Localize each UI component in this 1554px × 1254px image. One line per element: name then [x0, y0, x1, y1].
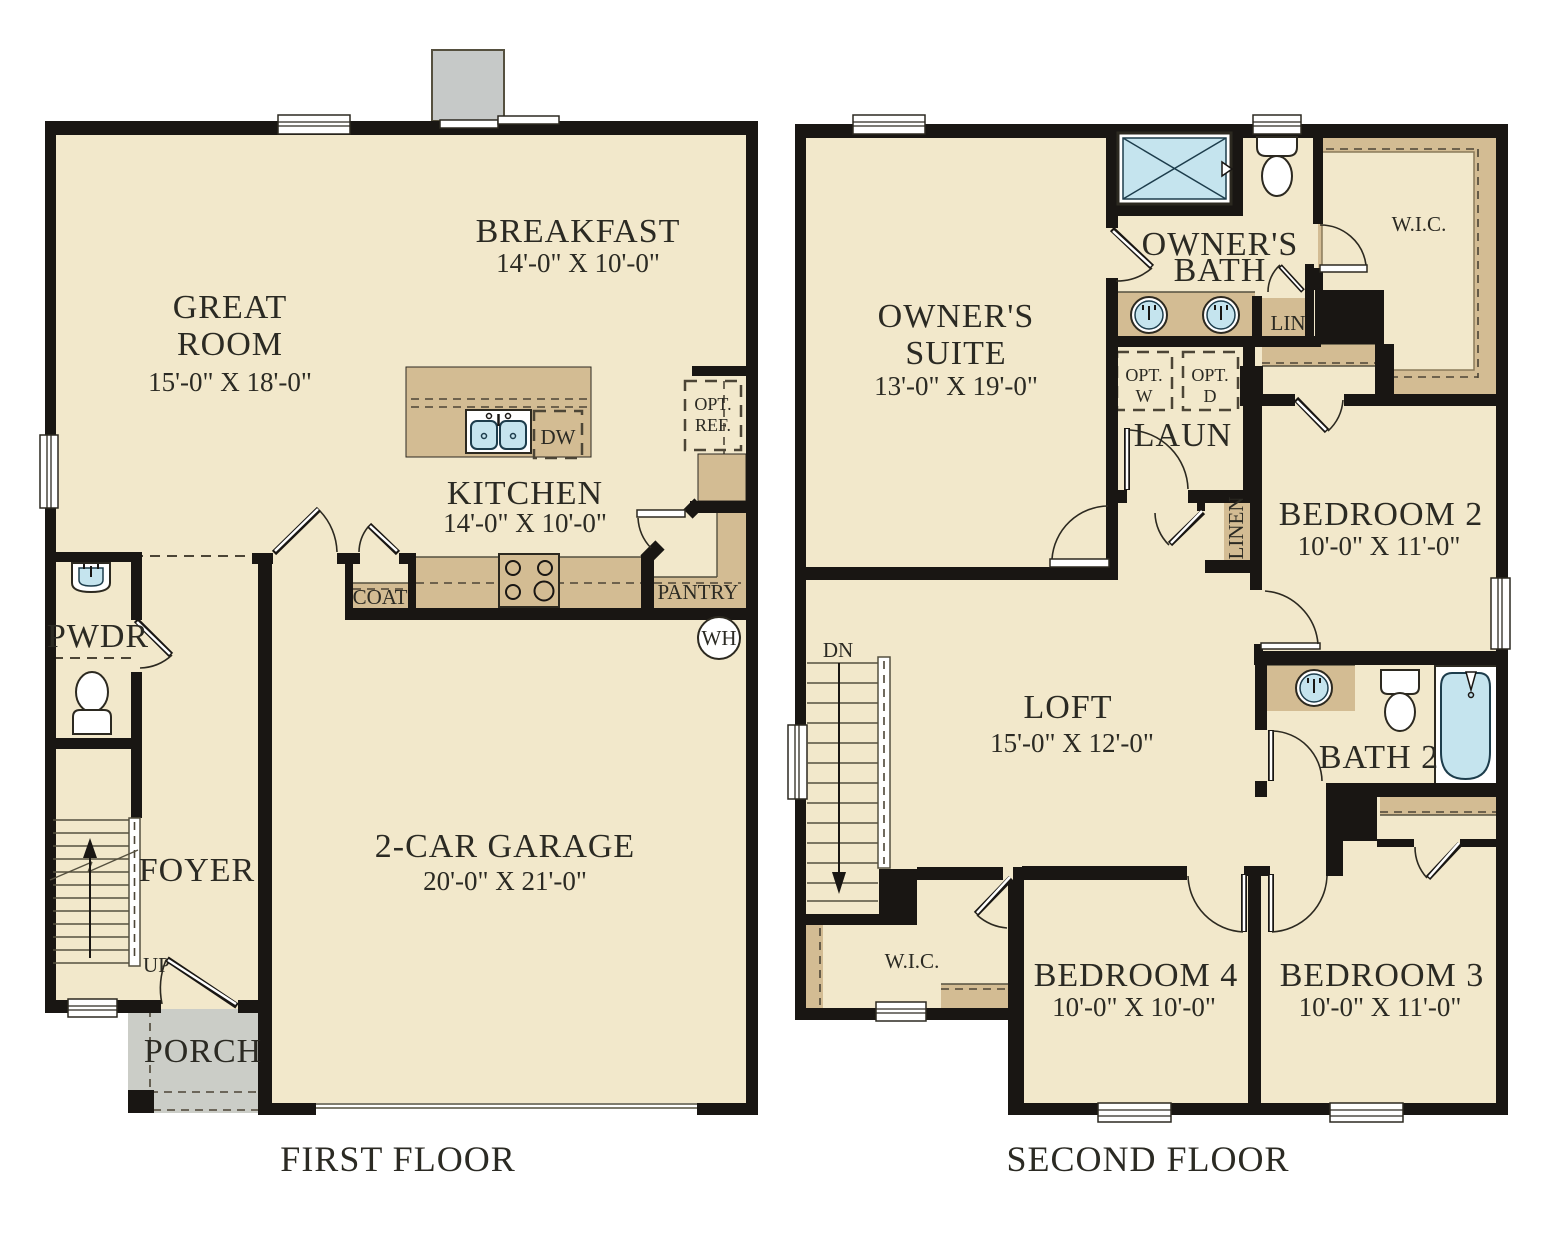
svg-text:LOFT: LOFT — [1024, 689, 1113, 726]
svg-text:LIN: LIN — [1271, 311, 1306, 335]
svg-text:BATH: BATH — [1174, 252, 1267, 289]
svg-text:OPT.: OPT. — [694, 394, 731, 414]
svg-text:SUITE: SUITE — [905, 335, 1006, 372]
svg-text:13'-0" X 19'-0": 13'-0" X 19'-0" — [874, 371, 1038, 401]
svg-text:PWDR: PWDR — [47, 618, 149, 655]
svg-text:D: D — [1204, 386, 1217, 406]
svg-text:KITCHEN: KITCHEN — [447, 475, 603, 512]
svg-text:PANTRY: PANTRY — [658, 580, 739, 604]
svg-text:W: W — [1136, 386, 1153, 406]
svg-text:DN: DN — [823, 638, 853, 662]
svg-text:W.I.C.: W.I.C. — [1392, 212, 1447, 236]
svg-text:20'-0" X 21'-0": 20'-0" X 21'-0" — [423, 866, 587, 896]
svg-text:FIRST FLOOR: FIRST FLOOR — [280, 1139, 515, 1179]
svg-text:BEDROOM 4: BEDROOM 4 — [1034, 957, 1239, 994]
svg-text:10'-0" X 10'-0": 10'-0" X 10'-0" — [1052, 992, 1216, 1022]
svg-text:2-CAR GARAGE: 2-CAR GARAGE — [375, 828, 635, 865]
svg-text:SECOND FLOOR: SECOND FLOOR — [1006, 1139, 1289, 1179]
svg-text:15'-0" X 12'-0": 15'-0" X 12'-0" — [990, 728, 1154, 758]
svg-text:BATH 2: BATH 2 — [1319, 739, 1439, 776]
svg-text:W.I.C.: W.I.C. — [885, 949, 940, 973]
svg-text:10'-0" X 11'-0": 10'-0" X 11'-0" — [1298, 531, 1461, 561]
svg-text:COAT: COAT — [353, 585, 408, 609]
svg-text:REF.: REF. — [695, 415, 731, 435]
svg-text:ROOM: ROOM — [177, 326, 283, 363]
svg-text:WH: WH — [702, 626, 737, 650]
svg-text:FOYER: FOYER — [139, 852, 255, 889]
svg-text:LINEN: LINEN — [1224, 497, 1248, 560]
svg-text:OPT.: OPT. — [1125, 365, 1162, 385]
svg-text:10'-0" X 11'-0": 10'-0" X 11'-0" — [1299, 992, 1462, 1022]
svg-text:14'-0" X 10'-0": 14'-0" X 10'-0" — [496, 248, 660, 278]
svg-text:BEDROOM 2: BEDROOM 2 — [1279, 496, 1484, 533]
svg-text:BREAKFAST: BREAKFAST — [476, 213, 681, 250]
svg-text:BEDROOM 3: BEDROOM 3 — [1280, 957, 1485, 994]
svg-text:GREAT: GREAT — [173, 289, 288, 326]
svg-text:14'-0" X 10'-0": 14'-0" X 10'-0" — [443, 508, 607, 538]
svg-text:UP: UP — [143, 953, 170, 977]
svg-text:15'-0" X 18'-0": 15'-0" X 18'-0" — [148, 367, 312, 397]
svg-text:OWNER'S: OWNER'S — [878, 298, 1035, 335]
svg-text:LAUN: LAUN — [1134, 417, 1232, 454]
svg-text:PORCH: PORCH — [144, 1033, 262, 1070]
svg-text:DW: DW — [541, 425, 576, 449]
svg-text:OPT.: OPT. — [1191, 365, 1228, 385]
